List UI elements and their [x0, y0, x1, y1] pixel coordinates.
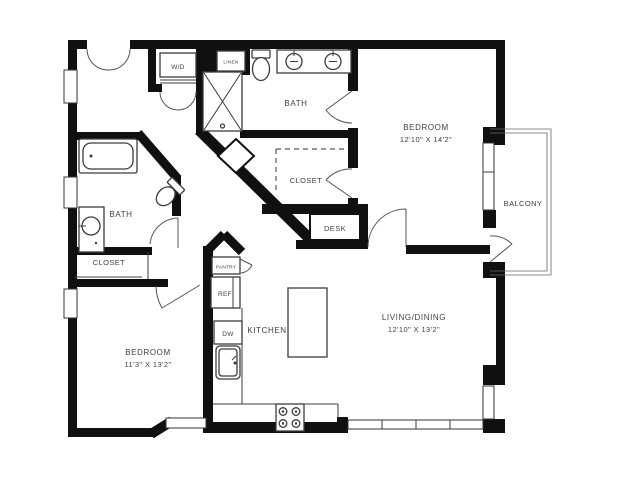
window-left-bottom — [64, 289, 77, 318]
double-vanity — [277, 50, 351, 73]
pantry-door — [240, 259, 252, 273]
shower — [203, 72, 242, 131]
bedroom2-label: BEDROOM — [125, 348, 171, 357]
bedroom1-door — [368, 209, 406, 247]
kitchen-island — [288, 288, 327, 357]
closet1-label: CLOSET — [290, 176, 322, 185]
toilet-top-bath — [252, 50, 270, 81]
window-bedroom2-bottom — [166, 418, 206, 428]
closet2-label: CLOSET — [93, 258, 125, 267]
linen-label: LINEN — [223, 60, 238, 66]
interior-walls — [68, 43, 490, 433]
floor-plan-drawing: W/D LINEN BATH BEDROOM 12'10" X 14'2" BA… — [0, 0, 622, 480]
washer-dryer-label: W/D — [171, 64, 185, 71]
balcony-door — [490, 236, 512, 262]
bedroom2-dims: 11'3" X 13'2" — [124, 360, 171, 369]
stove — [276, 404, 304, 431]
bedroom1-label: BEDROOM — [403, 123, 449, 132]
dishwasher-label: DW — [222, 331, 234, 338]
window-living-right — [483, 386, 494, 419]
column-diamond — [218, 139, 254, 173]
vanity-left-bath — [79, 207, 104, 252]
bath-top-label: BATH — [284, 99, 307, 108]
bedroom1-dims: 12'10" X 14'2" — [400, 135, 452, 144]
balcony-label: BALCONY — [504, 199, 543, 208]
floor-plan-page: W/D LINEN BATH BEDROOM 12'10" X 14'2" BA… — [0, 0, 622, 480]
living-dining-dims: 12'10" X 13'2" — [388, 325, 440, 334]
closet1-door — [326, 169, 352, 198]
bath-left-label: BATH — [109, 210, 132, 219]
bedroom2-door — [156, 285, 200, 308]
bath-left-door — [150, 218, 178, 248]
washer-dryer-shelf — [160, 80, 196, 83]
desk-label: DESK — [324, 224, 346, 233]
bath-top-door — [326, 91, 352, 123]
kitchen-label: KITCHEN — [247, 326, 286, 335]
kitchen-sink — [216, 346, 240, 379]
bathtub — [79, 139, 137, 173]
window-left-middle — [64, 177, 77, 208]
refrigerator-label: REF — [218, 291, 232, 298]
pantry-label: PANTRY — [216, 265, 237, 271]
window-left-top — [64, 70, 77, 103]
washer-dryer-doors — [160, 92, 196, 110]
entry-double-door — [87, 49, 130, 70]
window-bedroom1-balcony — [483, 143, 494, 210]
living-dining-label: LIVING/DINING — [382, 313, 446, 322]
